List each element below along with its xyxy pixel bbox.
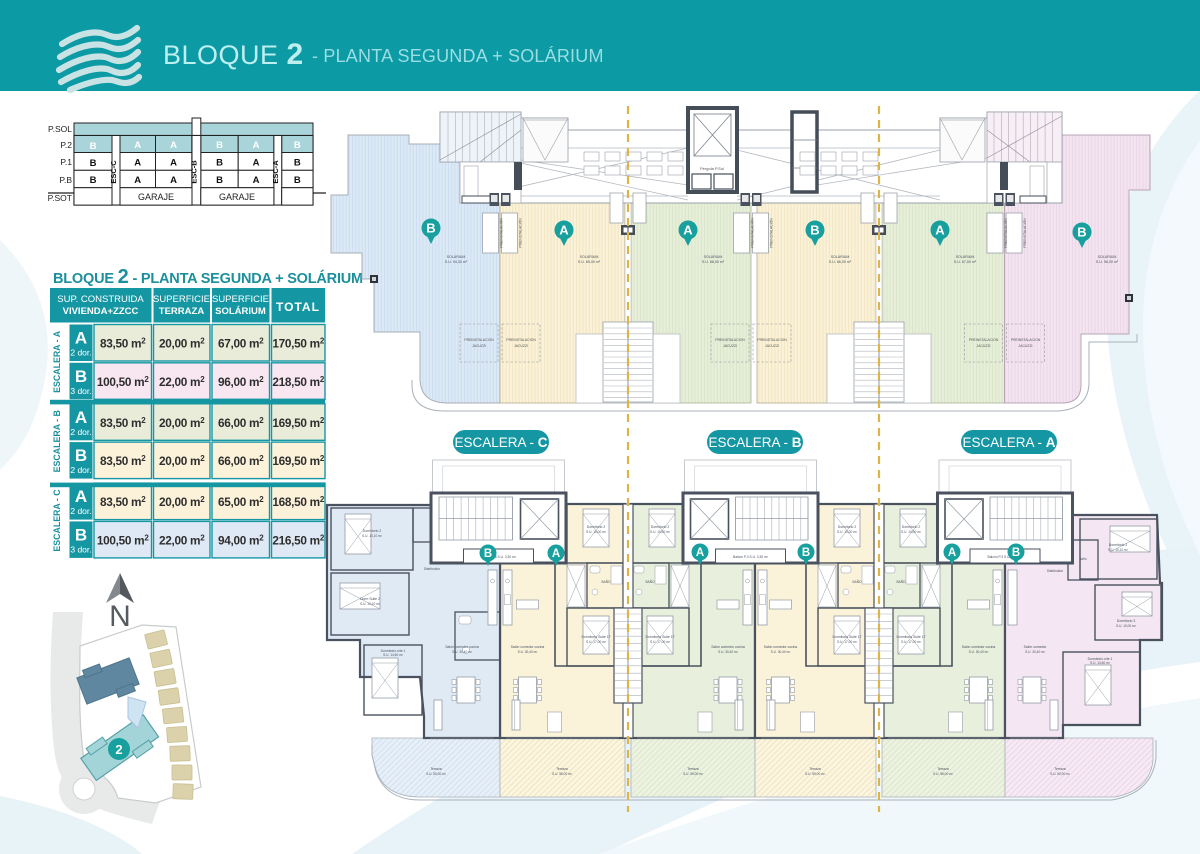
svg-text:SOLÁRIUM: SOLÁRIUM: [447, 255, 466, 259]
svg-text:B: B: [810, 223, 819, 238]
svg-text:A: A: [170, 175, 177, 186]
svg-text:Terraza: Terraza: [430, 767, 441, 771]
svg-text:GARAJE: GARAJE: [138, 192, 174, 202]
svg-text:P.SOT: P.SOT: [48, 193, 72, 203]
svg-text:Pérgola P.Sol: Pérgola P.Sol: [700, 166, 724, 171]
svg-text:B: B: [75, 446, 87, 465]
svg-text:S.U. 10,10 m²: S.U. 10,10 m²: [360, 602, 380, 606]
svg-text:216,50 m2: 216,50 m2: [272, 533, 324, 547]
svg-text:Dormitorio 3: Dormitorio 3: [1117, 619, 1136, 623]
svg-text:20,00 m2: 20,00 m2: [159, 416, 205, 430]
svg-text:S.U. 94,30 m²: S.U. 94,30 m²: [445, 260, 468, 264]
svg-text:S.U. 14,60 m²: S.U. 14,60 m²: [1090, 661, 1110, 665]
svg-text:Terraza: Terraza: [556, 767, 567, 771]
svg-text:A: A: [170, 140, 177, 151]
svg-text:2: 2: [115, 742, 122, 757]
svg-text:S.U. 59,00 m²: S.U. 59,00 m²: [805, 772, 825, 776]
svg-text:Salón comedor cocina: Salón comedor cocina: [764, 645, 798, 649]
svg-text:JACUZZI: JACUZZI: [1019, 344, 1033, 348]
svg-text:A: A: [253, 175, 260, 186]
svg-text:65,00 m2: 65,00 m2: [218, 495, 264, 509]
svg-text:PREINSTALACIÓN: PREINSTALACIÓN: [769, 218, 774, 248]
svg-text:BAÑO: BAÑO: [852, 579, 862, 584]
svg-text:PREINSTALACIÓN: PREINSTALACIÓN: [518, 218, 523, 248]
svg-text:N: N: [109, 600, 131, 633]
svg-text:Dormitorio Suite 17: Dormitorio Suite 17: [832, 635, 861, 639]
svg-text:20,00 m2: 20,00 m2: [159, 454, 205, 468]
svg-text:S.U. 17,00 m²: S.U. 17,00 m²: [650, 640, 670, 644]
svg-text:170,50 m2: 170,50 m2: [272, 337, 324, 351]
svg-text:S.U. 50,00 m²: S.U. 50,00 m²: [1050, 772, 1070, 776]
svg-text:P.SOL: P.SOL: [48, 124, 72, 134]
svg-text:SUP. CONSTRUIDA: SUP. CONSTRUIDA: [57, 294, 144, 305]
svg-text:P.B: P.B: [59, 175, 72, 185]
svg-text:B: B: [1077, 225, 1086, 240]
svg-text:A: A: [696, 547, 704, 559]
svg-text:168,50 m2: 168,50 m2: [272, 495, 324, 509]
svg-text:- PLANTA SEGUNDA + SOLÁRIUM: - PLANTA SEGUNDA + SOLÁRIUM: [312, 46, 604, 66]
svg-text:96,00 m2: 96,00 m2: [218, 375, 264, 389]
svg-text:ESC-A: ESC-A: [271, 160, 280, 184]
svg-text:A: A: [683, 223, 693, 238]
svg-text:A: A: [253, 140, 260, 151]
svg-text:JACUZZI: JACUZZI: [765, 344, 779, 348]
svg-text:ESC-B: ESC-B: [189, 160, 198, 184]
svg-text:S.U. 30,40 m²: S.U. 30,40 m²: [718, 650, 738, 654]
svg-text:66,00 m2: 66,00 m2: [218, 416, 264, 430]
svg-text:S.U. 14,60 m²: S.U. 14,60 m²: [383, 653, 403, 657]
svg-text:S.U. 30,40 m²: S.U. 30,40 m²: [1025, 650, 1045, 654]
svg-text:83,50 m2: 83,50 m2: [100, 495, 146, 509]
svg-text:2 dor.: 2 dor.: [70, 427, 91, 437]
svg-text:A: A: [134, 158, 141, 169]
svg-text:GARAJE: GARAJE: [219, 192, 255, 202]
svg-text:B: B: [75, 367, 87, 386]
svg-text:JACUZZI: JACUZZI: [472, 344, 486, 348]
svg-text:Baño: Baño: [1079, 557, 1087, 561]
svg-text:Balcón P.3 S.U. 3,30 m²: Balcón P.3 S.U. 3,30 m²: [733, 555, 769, 559]
svg-text:PREINSTALACION: PREINSTALACION: [757, 338, 787, 342]
svg-text:Dormitorio 2: Dormitorio 2: [363, 529, 382, 533]
svg-text:22,00 m2: 22,00 m2: [159, 533, 205, 547]
svg-text:169,50 m2: 169,50 m2: [272, 454, 324, 468]
svg-text:TOTAL: TOTAL: [276, 300, 320, 314]
svg-text:B: B: [426, 221, 435, 236]
svg-text:Distribuidor: Distribuidor: [1047, 569, 1064, 573]
svg-text:Dormitorio 2: Dormitorio 2: [587, 525, 606, 529]
svg-text:BAÑO: BAÑO: [601, 579, 611, 584]
svg-text:ESCALERA - C: ESCALERA - C: [454, 435, 547, 450]
svg-text:A: A: [75, 408, 87, 427]
svg-text:PREINSTALACIÓN: PREINSTALACIÓN: [1022, 218, 1027, 248]
svg-text:SOLÁRIUM: SOLÁRIUM: [1098, 255, 1117, 259]
svg-text:ESCALERA - C: ESCALERA - C: [52, 489, 62, 552]
svg-text:BAÑO: BAÑO: [896, 579, 906, 584]
svg-text:S.U. 96,00 m²: S.U. 96,00 m²: [1096, 260, 1119, 264]
svg-text:A: A: [134, 175, 141, 186]
svg-text:PREINSTALACION: PREINSTALACION: [464, 338, 494, 342]
svg-text:B: B: [1012, 547, 1020, 559]
svg-text:67,00 m2: 67,00 m2: [218, 337, 264, 351]
svg-text:B: B: [90, 158, 97, 169]
svg-text:S.U. 67,00 m²: S.U. 67,00 m²: [954, 260, 977, 264]
svg-text:TERRAZA: TERRAZA: [159, 306, 205, 317]
svg-text:B: B: [216, 158, 223, 169]
svg-text:Terraza: Terraza: [937, 767, 948, 771]
svg-text:P.1: P.1: [60, 157, 72, 167]
svg-text:B: B: [294, 158, 301, 169]
svg-text:S.U. 30,40 m²: S.U. 30,40 m²: [969, 650, 989, 654]
svg-text:83,50 m2: 83,50 m2: [100, 337, 146, 351]
svg-text:Terraza: Terraza: [809, 767, 820, 771]
svg-text:S.U. 56,00 m²: S.U. 56,00 m²: [552, 772, 572, 776]
svg-text:PREINSTALACIÓN: PREINSTALACIÓN: [1003, 218, 1008, 248]
svg-text:SOLÁRIUM: SOLÁRIUM: [704, 255, 723, 259]
svg-text:B: B: [802, 547, 810, 559]
svg-text:SOLÁRIUM: SOLÁRIUM: [956, 255, 975, 259]
svg-text:B: B: [90, 141, 97, 152]
svg-text:2 dor.: 2 dor.: [70, 465, 91, 475]
svg-text:20,00 m2: 20,00 m2: [159, 337, 205, 351]
svg-text:S.U. 66,00 m²: S.U. 66,00 m²: [702, 260, 725, 264]
svg-text:S.U. 50,00 m²: S.U. 50,00 m²: [426, 772, 446, 776]
svg-text:Distribuidor: Distribuidor: [424, 567, 441, 571]
svg-text:22,00 m2: 22,00 m2: [159, 375, 205, 389]
svg-text:PREINSTALACIÓN: PREINSTALACIÓN: [499, 218, 504, 248]
svg-text:ESC-C: ESC-C: [109, 160, 118, 184]
svg-text:S.U. 10,00 m²: S.U. 10,00 m²: [1116, 624, 1136, 628]
svg-text:SUPERFICIE: SUPERFICIE: [153, 294, 210, 305]
svg-text:2 dor.: 2 dor.: [70, 506, 91, 516]
svg-text:S.U. 56,00 m²: S.U. 56,00 m²: [933, 772, 953, 776]
svg-text:A: A: [134, 140, 141, 151]
svg-text:B: B: [294, 175, 301, 186]
svg-text:BAÑO: BAÑO: [645, 579, 655, 584]
svg-text:S.U. 17,00 m²: S.U. 17,00 m²: [586, 640, 606, 644]
svg-text:3 dor.: 3 dor.: [70, 544, 91, 554]
svg-text:B: B: [484, 548, 492, 560]
svg-text:PREINSTALACION: PREINSTALACION: [506, 338, 536, 342]
svg-text:S.U. 59,00 m²: S.U. 59,00 m²: [683, 772, 703, 776]
svg-text:Terraza: Terraza: [687, 767, 698, 771]
svg-text:Salón comedor cocina: Salón comedor cocina: [445, 645, 479, 649]
svg-text:S.U. 65,00 m²: S.U. 65,00 m²: [578, 260, 601, 264]
svg-text:S.U. 30,40 m²: S.U. 30,40 m²: [452, 650, 472, 654]
svg-text:Dormitorio 2: Dormitorio 2: [1109, 543, 1128, 547]
svg-text:Dormitorio Suite 17: Dormitorio Suite 17: [896, 635, 925, 639]
svg-text:83,50 m2: 83,50 m2: [100, 454, 146, 468]
svg-text:100,50 m2: 100,50 m2: [97, 533, 149, 547]
svg-text:JACUZZI: JACUZZI: [723, 344, 737, 348]
svg-text:B: B: [90, 175, 97, 186]
svg-text:A: A: [935, 223, 945, 238]
svg-text:A: A: [170, 158, 177, 169]
svg-text:2 dor.: 2 dor.: [70, 348, 91, 358]
svg-text:Salón comedor cocina: Salón comedor cocina: [711, 645, 745, 649]
svg-text:JACUZZI: JACUZZI: [514, 344, 528, 348]
svg-text:SOLÁRIUM: SOLÁRIUM: [580, 255, 599, 259]
svg-text:JACUZZI: JACUZZI: [977, 344, 991, 348]
svg-text:A: A: [948, 547, 956, 559]
svg-text:SOLÁRIUM: SOLÁRIUM: [831, 255, 850, 259]
svg-text:94,00 m2: 94,00 m2: [218, 533, 264, 547]
svg-text:169,50 m2: 169,50 m2: [272, 416, 324, 430]
svg-text:Dormitorio Suite 17: Dormitorio Suite 17: [581, 635, 610, 639]
svg-text:Terraza: Terraza: [1054, 767, 1065, 771]
svg-text:B: B: [75, 525, 87, 544]
svg-text:PREINSTALACION: PREINSTALACION: [715, 338, 745, 342]
svg-text:PREINSTALACIÓN: PREINSTALACIÓN: [750, 218, 755, 248]
svg-text:100,50 m2: 100,50 m2: [97, 375, 149, 389]
svg-text:ESCALERA - B: ESCALERA - B: [708, 435, 801, 450]
svg-text:Salón comedor: Salón comedor: [1024, 645, 1048, 649]
svg-text:Salón comedor cocina: Salón comedor cocina: [511, 645, 545, 649]
svg-text:S.U. 30,40 m²: S.U. 30,40 m²: [771, 650, 791, 654]
svg-text:S.U. 66,00 m²: S.U. 66,00 m²: [829, 260, 852, 264]
svg-text:3 dor.: 3 dor.: [70, 386, 91, 396]
svg-text:S.U. 10,10 m²: S.U. 10,10 m²: [362, 534, 382, 538]
svg-text:20,00 m2: 20,00 m2: [159, 495, 205, 509]
svg-text:SUPERFICIE: SUPERFICIE: [212, 294, 269, 305]
svg-text:PREINSTALACION: PREINSTALACION: [1011, 338, 1041, 342]
svg-text:S.U. 10,10 m²: S.U. 10,10 m²: [1108, 548, 1128, 552]
svg-text:A: A: [559, 223, 569, 238]
svg-text:S.U. 10,00 m²: S.U. 10,00 m²: [901, 530, 921, 534]
svg-text:VIVIENDA+ZZCC: VIVIENDA+ZZCC: [63, 306, 139, 317]
svg-text:BLOQUE 2: BLOQUE 2: [163, 38, 304, 71]
svg-text:S.U. 10,00 m²: S.U. 10,00 m²: [586, 530, 606, 534]
svg-text:S.U. 17,00 m²: S.U. 17,00 m²: [901, 640, 921, 644]
svg-text:SOLÁRIUM: SOLÁRIUM: [215, 306, 266, 317]
svg-text:ESCALERA - B: ESCALERA - B: [52, 410, 62, 472]
svg-text:Dorm Suite 2: Dorm Suite 2: [360, 597, 380, 601]
svg-text:S.U. 10,00 m²: S.U. 10,00 m²: [650, 530, 670, 534]
svg-text:Salón comedor cocina: Salón comedor cocina: [962, 645, 996, 649]
svg-text:218,50 m2: 218,50 m2: [272, 375, 324, 389]
svg-text:A: A: [253, 158, 260, 169]
svg-text:PREINSTALACION: PREINSTALACION: [969, 338, 999, 342]
svg-text:S.U. 17,00 m²: S.U. 17,00 m²: [837, 640, 857, 644]
svg-text:ESCALERA - A: ESCALERA - A: [52, 330, 62, 393]
svg-text:P.2: P.2: [60, 140, 72, 150]
svg-text:B: B: [216, 175, 223, 186]
svg-text:B: B: [216, 140, 223, 151]
svg-text:S.U. 10,00 m²: S.U. 10,00 m²: [837, 530, 857, 534]
svg-text:S.U. 30,40 m²: S.U. 30,40 m²: [518, 650, 538, 654]
svg-text:Dormitorio 2: Dormitorio 2: [838, 525, 857, 529]
svg-text:Dormitorio 2: Dormitorio 2: [902, 525, 921, 529]
svg-text:A: A: [75, 329, 87, 348]
svg-text:66,00 m2: 66,00 m2: [218, 454, 264, 468]
svg-text:A: A: [552, 548, 560, 560]
svg-text:83,50 m2: 83,50 m2: [100, 416, 146, 430]
svg-text:ESCALERA - A: ESCALERA - A: [962, 435, 1055, 450]
svg-text:A: A: [75, 487, 87, 506]
svg-text:Dormitorio 2: Dormitorio 2: [651, 525, 670, 529]
svg-text:Dormitorio Suite 17: Dormitorio Suite 17: [645, 635, 674, 639]
svg-text:B: B: [294, 140, 301, 151]
